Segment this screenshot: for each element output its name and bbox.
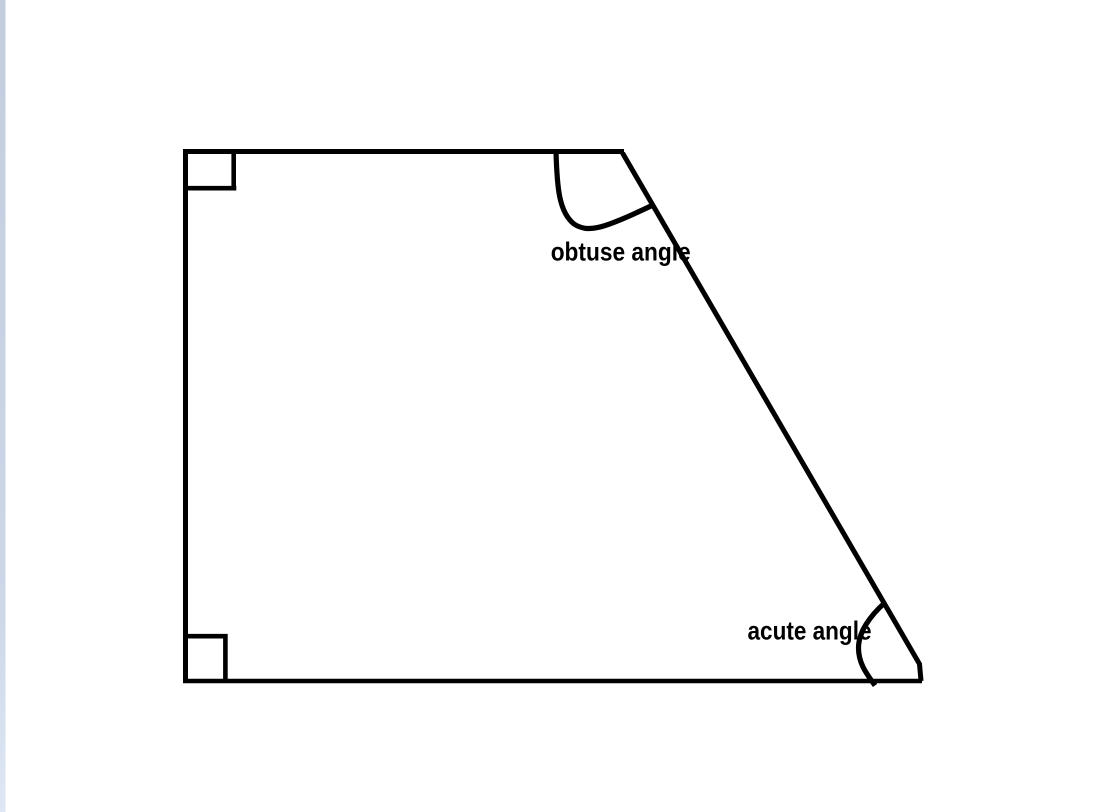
svg-text:acute angle: acute angle (748, 615, 872, 645)
svg-text:obtuse angle: obtuse angle (551, 237, 691, 267)
